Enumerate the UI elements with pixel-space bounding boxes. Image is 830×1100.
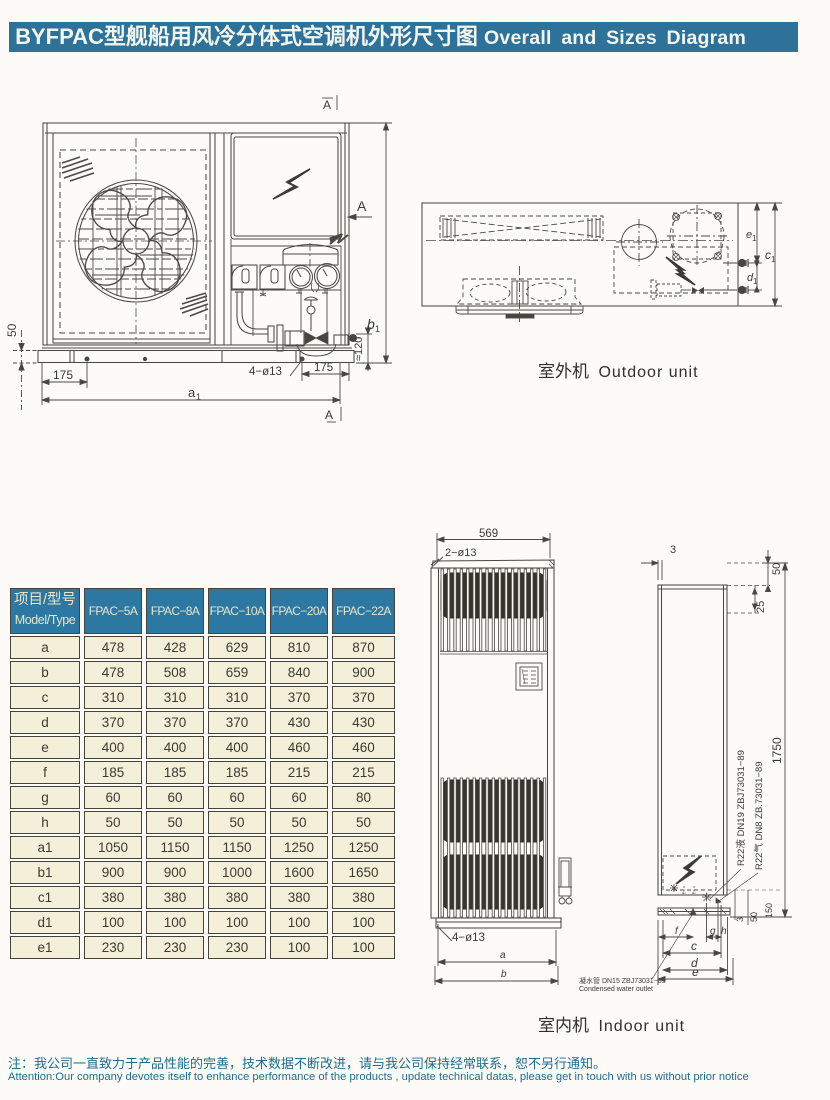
svg-text:50: 50 <box>749 912 759 922</box>
svg-text:1: 1 <box>752 234 757 243</box>
svg-text:A: A <box>323 98 331 112</box>
svg-text:b: b <box>501 969 507 980</box>
svg-text:3: 3 <box>670 544 676 556</box>
svg-text:50: 50 <box>5 323 19 337</box>
svg-text:25: 25 <box>755 601 767 613</box>
svg-text:1: 1 <box>196 392 201 402</box>
svg-text:1: 1 <box>771 255 776 264</box>
svg-text:Condensed water outlet: Condensed water outlet <box>579 986 653 993</box>
svg-text:A: A <box>325 408 333 422</box>
svg-text:a: a <box>188 385 196 400</box>
svg-text:f: f <box>675 926 679 937</box>
svg-text:175: 175 <box>53 368 73 382</box>
svg-text:e: e <box>692 965 699 979</box>
svg-text:≈120: ≈120 <box>353 337 365 361</box>
svg-text:a: a <box>500 950 506 961</box>
svg-text:3: 3 <box>735 917 745 922</box>
svg-text:c: c <box>691 939 697 953</box>
svg-text:A: A <box>357 198 367 214</box>
svg-text:50: 50 <box>771 563 783 575</box>
svg-text:2−ø13: 2−ø13 <box>445 547 477 559</box>
svg-text:b: b <box>367 316 375 332</box>
svg-text:1: 1 <box>375 324 380 334</box>
svg-text:R22气 DN8 ZB.73031−89: R22气 DN8 ZB.73031−89 <box>753 761 765 870</box>
svg-text:g: g <box>710 926 716 937</box>
svg-text:569: 569 <box>479 528 498 540</box>
svg-text:4−ø13: 4−ø13 <box>249 366 282 378</box>
svg-text:1750: 1750 <box>770 737 784 764</box>
svg-text:175: 175 <box>314 362 333 374</box>
svg-text:h: h <box>721 926 727 937</box>
svg-text:1: 1 <box>753 277 758 286</box>
svg-text:150: 150 <box>764 903 774 918</box>
svg-text:4−ø13: 4−ø13 <box>452 932 485 944</box>
svg-text:R22液 DN19 ZBJ73031−89: R22液 DN19 ZBJ73031−89 <box>735 750 747 866</box>
